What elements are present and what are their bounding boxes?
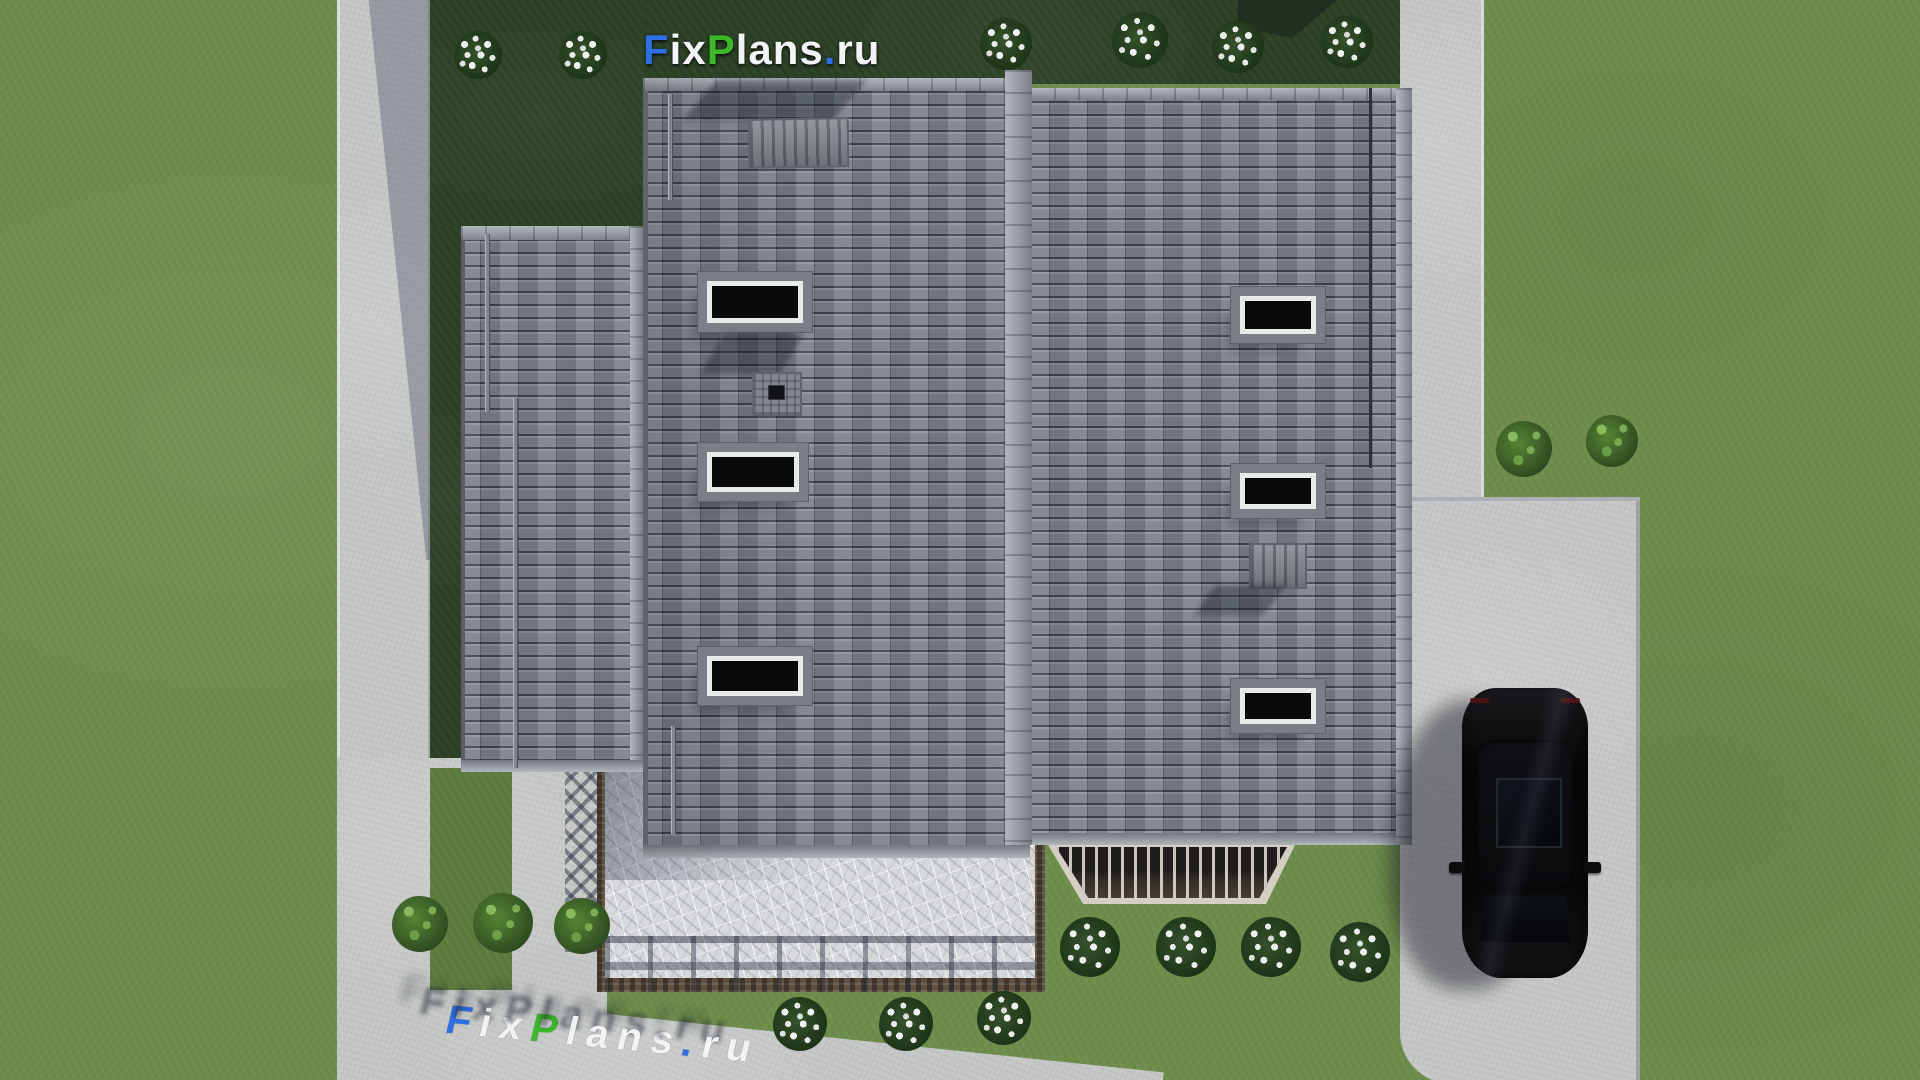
wing-eaves-bottom: [461, 760, 643, 772]
logo-segment: ru: [836, 26, 880, 73]
flower-bush: [559, 31, 607, 79]
green-bush: [473, 893, 533, 953]
terrace-deck: [1047, 843, 1296, 904]
flower-bush: [1241, 917, 1301, 977]
green-bush: [392, 896, 448, 952]
roof-left-wing: [461, 226, 643, 772]
logo-segment: lans: [736, 26, 824, 73]
flower-bush: [1112, 12, 1168, 68]
roof-hatch-vent: [748, 117, 850, 169]
skylight-right-3: [1240, 688, 1316, 724]
flower-bush: [454, 31, 502, 79]
roof-vent-right: [1249, 543, 1307, 589]
roof-chimney: [752, 372, 802, 416]
flower-bush: [1330, 922, 1390, 982]
logo-segment: P: [707, 26, 736, 73]
site-logo: FixPlans.ru: [643, 26, 880, 74]
flower-bush: [1212, 21, 1264, 73]
logo-segment: F: [643, 26, 670, 73]
roof-main-right: [1030, 88, 1412, 845]
ground-logo-segment: ru: [697, 1023, 765, 1072]
wing-snow-guard-1: [485, 234, 490, 412]
flower-bush: [1060, 917, 1120, 977]
wing-ridge-right: [630, 226, 643, 772]
roof-shading-overlay: [643, 78, 1030, 858]
green-bush: [1586, 415, 1638, 467]
roof-cable: [1369, 88, 1372, 468]
main-right-ridge-top: [1030, 88, 1412, 100]
car: [1462, 688, 1588, 978]
deck-railing: [1056, 847, 1287, 898]
skylight-left-1: [707, 281, 803, 323]
car-sheen: [1462, 688, 1588, 978]
wing-snow-guard-2: [513, 398, 518, 768]
roof-pipe-top: [668, 94, 673, 200]
flower-bush: [773, 997, 827, 1051]
main-right-eaves-bottom: [1030, 833, 1412, 845]
flower-bush: [1156, 917, 1216, 977]
main-ridge-center: [1005, 70, 1032, 845]
roof-pipe-bottom: [671, 726, 676, 834]
shaded-grass-left-of-wing: [430, 226, 464, 774]
site-plan-render: FixPlans.ru: [0, 0, 1920, 1080]
lawn-inset: [430, 768, 512, 990]
main-right-fascia-right: [1396, 88, 1412, 845]
logo-segment: .: [824, 26, 837, 73]
flower-bush: [980, 18, 1032, 70]
railing-shadow-grid-on-patio: [605, 936, 1035, 992]
skylight-right-2: [1240, 473, 1316, 509]
flower-bush: [977, 991, 1031, 1045]
skylight-left-2: [707, 452, 799, 492]
walk-path-right: [1400, 0, 1484, 500]
skylight-right-1: [1240, 296, 1316, 334]
chimney-flue: [768, 385, 785, 400]
logo-segment: ix: [670, 26, 707, 73]
flower-bush: [879, 997, 933, 1051]
green-bush: [554, 898, 610, 954]
skylight-left-3: [707, 656, 803, 696]
green-bush: [1496, 421, 1552, 477]
flower-bush: [1321, 16, 1373, 68]
roof-main-left: [643, 78, 1030, 858]
